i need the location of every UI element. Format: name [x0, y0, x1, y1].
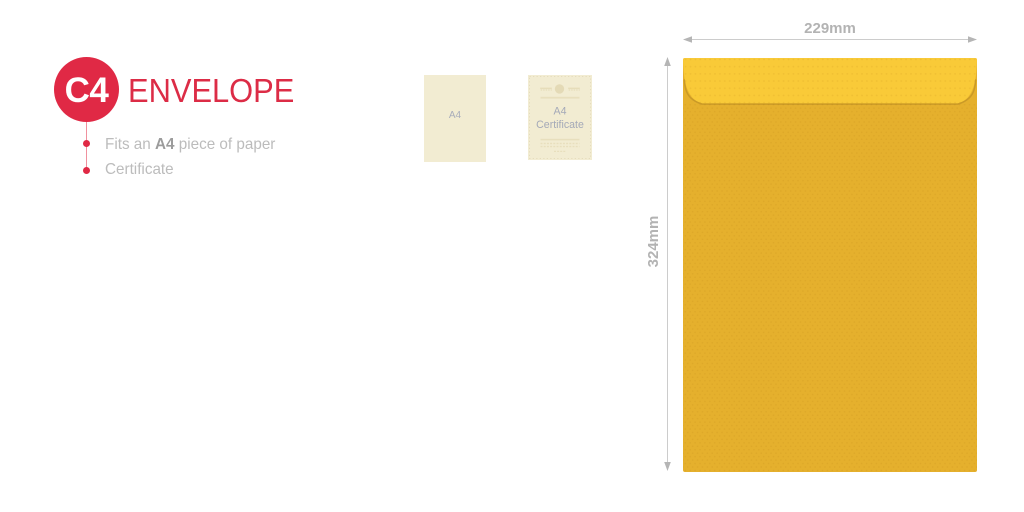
- svg-text:324mm: 324mm: [645, 216, 662, 268]
- svg-text:Certificate: Certificate: [536, 119, 584, 131]
- svg-text:A4: A4: [554, 105, 567, 117]
- svg-text:229mm: 229mm: [804, 20, 856, 37]
